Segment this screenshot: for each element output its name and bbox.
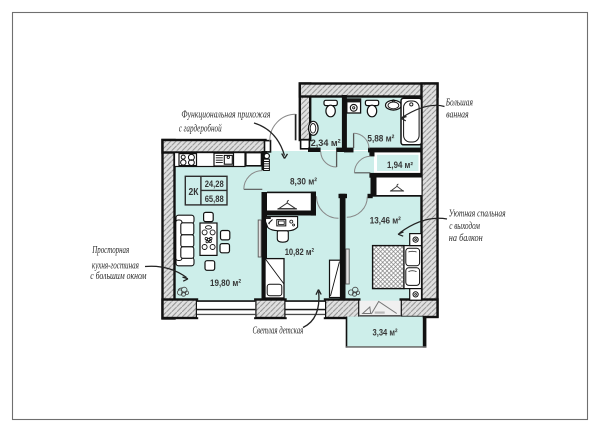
svg-text:кухня-гостиная: кухня-гостиная [92,260,139,271]
svg-text:Большая: Большая [445,97,473,108]
svg-text:2,34 м²: 2,34 м² [311,138,341,148]
svg-text:с гардеробной: с гардеробной [179,124,222,135]
svg-text:19,80 м²: 19,80 м² [210,278,241,288]
svg-text:с большим окном: с большим окном [90,271,147,282]
svg-text:3,34 м²: 3,34 м² [373,328,398,338]
svg-text:24,28: 24,28 [205,179,225,190]
svg-text:2К: 2К [189,186,199,198]
svg-text:10,82 м²: 10,82 м² [285,247,314,257]
svg-text:ванная: ванная [446,110,469,121]
svg-text:1,94 м²: 1,94 м² [387,160,413,170]
svg-text:8,30 м²: 8,30 м² [290,177,317,187]
svg-text:Функциональная прихожая: Функциональная прихожая [181,110,270,121]
svg-text:65,88: 65,88 [205,194,225,205]
svg-text:с выходом: с выходом [449,221,480,232]
svg-text:Просторная: Просторная [92,245,130,256]
svg-text:Светлая детская: Светлая детская [253,325,304,336]
svg-text:на балкон: на балкон [449,233,483,244]
svg-text:Уютная спальная: Уютная спальная [449,208,506,219]
svg-text:5,88 м²: 5,88 м² [367,133,394,143]
svg-text:13,46 м²: 13,46 м² [370,216,401,226]
